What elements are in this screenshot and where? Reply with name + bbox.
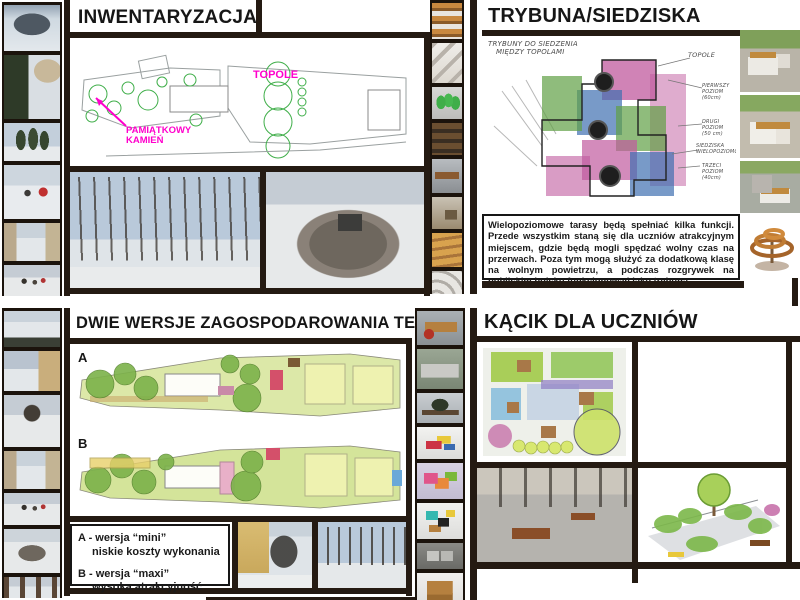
photo-strip-winter-top-left — [2, 2, 62, 296]
photo-wooden-bleachers — [432, 233, 462, 267]
corner-plan-drawing — [483, 348, 626, 456]
photo-people-on-path — [4, 165, 60, 219]
photo-interior-steps — [432, 197, 462, 229]
photo-concrete-bench — [417, 349, 463, 389]
photo-snowy-alley-tree — [4, 395, 60, 447]
masterplan-variants: A B — [70, 344, 406, 516]
sketch-note-topole: TOPOLE — [688, 52, 715, 59]
sketch-note-4: TRZECI POZIOM (40cm) — [702, 164, 732, 181]
photo-hedge-building — [4, 55, 60, 119]
photo-plaza-benches-autumn — [477, 468, 632, 562]
sketch-note-main-line1: TRYBUNY DO SIEDZENIA — [488, 40, 608, 48]
frame-line — [632, 569, 638, 583]
site-plan-inventory: TOPOLE PAMIĄTKOWY KAMIEŃ — [70, 38, 424, 166]
photo-memorial-stone — [266, 172, 424, 288]
caption-b-line1: B - wersja “maxi” — [78, 568, 222, 582]
plan-label-topole: TOPOLE — [253, 70, 298, 82]
caption-spacer — [78, 560, 222, 568]
photo-building-trees — [4, 351, 60, 391]
photo-green-stadium-seats — [432, 87, 462, 119]
site-plan-drawing — [70, 38, 424, 166]
plan-a-label: A — [78, 350, 87, 365]
masterplan-drawing — [70, 344, 406, 516]
sketch-note-3: SIEDZISKA WIELOPOZIOMOWE — [696, 144, 734, 156]
frame-line — [406, 338, 412, 596]
photo-bench-around-tree — [417, 393, 463, 423]
photo-park-bench-3 — [740, 161, 800, 213]
photo-bench-metal-frame — [432, 159, 462, 193]
photo-snow-covered-car — [4, 5, 60, 51]
plan-label-kamien-line2: KAMIEŃ — [126, 136, 191, 146]
frame-line — [470, 562, 800, 569]
sketch-note-1: PIERWSZY POZIOM (60cm) — [702, 84, 732, 101]
photo-plaza-benches-wet — [638, 342, 786, 462]
photo-curved-steps — [432, 271, 462, 294]
section-title-kacik: KĄCIK DLA UCZNIÓW — [484, 311, 698, 334]
photo-tiered-benches — [432, 3, 462, 39]
photo-stone-monument-snow — [4, 529, 60, 573]
trybuna-description: Wielopoziomowe tarasy będą spełniać kilk… — [482, 214, 740, 280]
photo-conifer-row — [4, 123, 60, 161]
frame-line — [792, 278, 798, 306]
section-title-inwentaryzacja: INWENTARYZACJA — [78, 7, 257, 29]
frame-line — [470, 308, 477, 600]
spiral-bench-drawing — [744, 216, 800, 278]
sketch-note-main-line2: MIĘDZY TOPOLAMI — [488, 48, 608, 56]
frame-line — [470, 0, 477, 294]
seating-sketch-drawing — [482, 36, 736, 214]
frame-line — [64, 288, 430, 294]
photo-people-walking-snow — [4, 265, 60, 296]
photo-strip-furniture-references — [415, 308, 465, 600]
caption-a-line1: A - wersja “mini” — [78, 532, 222, 546]
variant-captions: A - wersja “mini” niskie koszty wykonani… — [70, 524, 230, 586]
garden-corner-sketch — [638, 468, 786, 562]
sketch-note-2: DRUGI POZIOM (50 cm) — [702, 120, 732, 137]
section-title-dwie-wersje: DWIE WERSJE ZAGOSPODAROWANIA TERENU — [76, 314, 463, 333]
photo-colorful-cubes — [417, 463, 463, 499]
photo-winter-trees-row — [318, 522, 406, 588]
photo-school-building — [238, 522, 312, 588]
photo-cube-shelving — [417, 503, 463, 539]
corner-plan-sketch — [477, 342, 632, 462]
plan-b-label: B — [78, 436, 87, 451]
photo-footprints-snow — [4, 493, 60, 525]
photo-wooden-cube-chair — [417, 573, 463, 600]
photo-strip-seating-references — [430, 0, 464, 294]
photo-gate-fence — [4, 577, 60, 598]
photo-park-bench-2 — [740, 95, 800, 158]
plan-label-kamien: PAMIĄTKOWY KAMIEŃ — [126, 126, 191, 147]
photo-white-stairs — [432, 43, 462, 83]
photo-concrete-cubes — [417, 543, 463, 569]
caption-a-line2: niskie koszty wykonania — [78, 546, 222, 560]
photo-snowy-garden — [4, 311, 60, 347]
caption-b-line2: wysoka atrakcyjność — [78, 581, 222, 595]
presentation-board: INWENTARYZACJA TOPOLE PAMIĄTKOWY KAMIEŃ — [0, 0, 800, 600]
photo-winter-street — [4, 223, 60, 261]
photo-poplar-trees-winter — [70, 172, 260, 288]
photo-strip-winter-bottom-left — [2, 308, 62, 598]
frame-line — [786, 342, 792, 568]
spiral-bench-image — [744, 216, 800, 278]
photo-cross-shaped-seats — [417, 427, 463, 459]
sketch-note-main: TRYBUNY DO SIEDZENIA MIĘDZY TOPOLAMI — [488, 40, 608, 56]
section-title-trybuna: TRYBUNA/SIEDZISKA — [488, 5, 701, 28]
photo-park-bench-1 — [740, 30, 800, 92]
photo-snowy-street — [4, 451, 60, 489]
frame-line — [482, 281, 744, 288]
photo-bench-with-wheel — [417, 311, 463, 345]
photo-wooden-steps — [432, 123, 462, 155]
garden-corner-drawing — [638, 468, 786, 562]
seating-sketch: TRYBUNY DO SIEDZENIA MIĘDZY TOPOLAMI TOP… — [482, 36, 736, 214]
